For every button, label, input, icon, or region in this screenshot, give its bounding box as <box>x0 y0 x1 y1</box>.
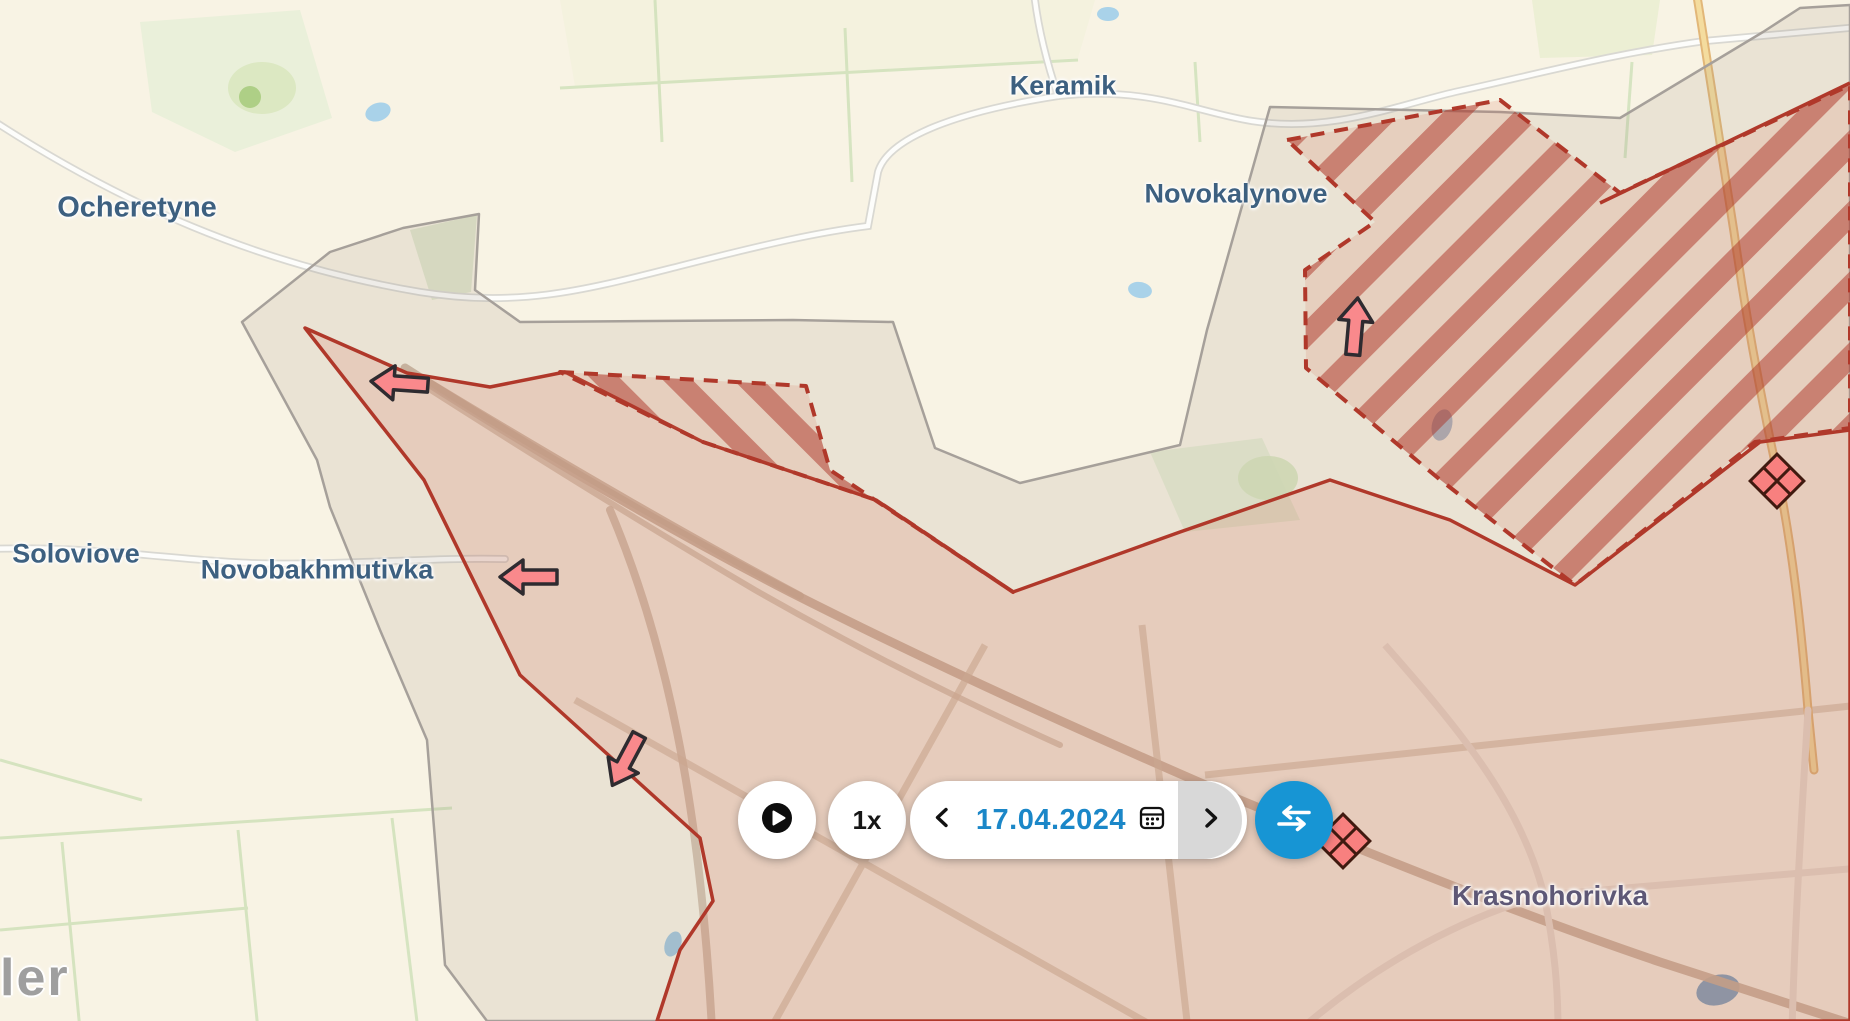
watermark-text: ler <box>0 948 70 1008</box>
calendar-icon <box>1138 819 1166 836</box>
speed-label: 1x <box>853 805 882 836</box>
swap-arrows-icon <box>1274 804 1314 837</box>
speed-button[interactable]: 1x <box>828 781 906 859</box>
date-picker: 17.04.2024 <box>910 781 1247 859</box>
date-field[interactable]: 17.04.2024 <box>962 781 1140 859</box>
compare-button[interactable] <box>1255 781 1333 859</box>
calendar-button[interactable] <box>1138 804 1166 837</box>
chevron-right-icon <box>1197 805 1223 836</box>
chevron-left-icon <box>930 818 956 835</box>
play-icon <box>761 802 793 839</box>
next-day-button[interactable] <box>1178 781 1242 859</box>
play-button[interactable] <box>738 781 816 859</box>
map-app: Ocheretyne Keramik Novokalynove Soloviov… <box>0 0 1850 1021</box>
prev-day-button[interactable] <box>930 805 956 836</box>
map-canvas[interactable] <box>0 0 1850 1021</box>
